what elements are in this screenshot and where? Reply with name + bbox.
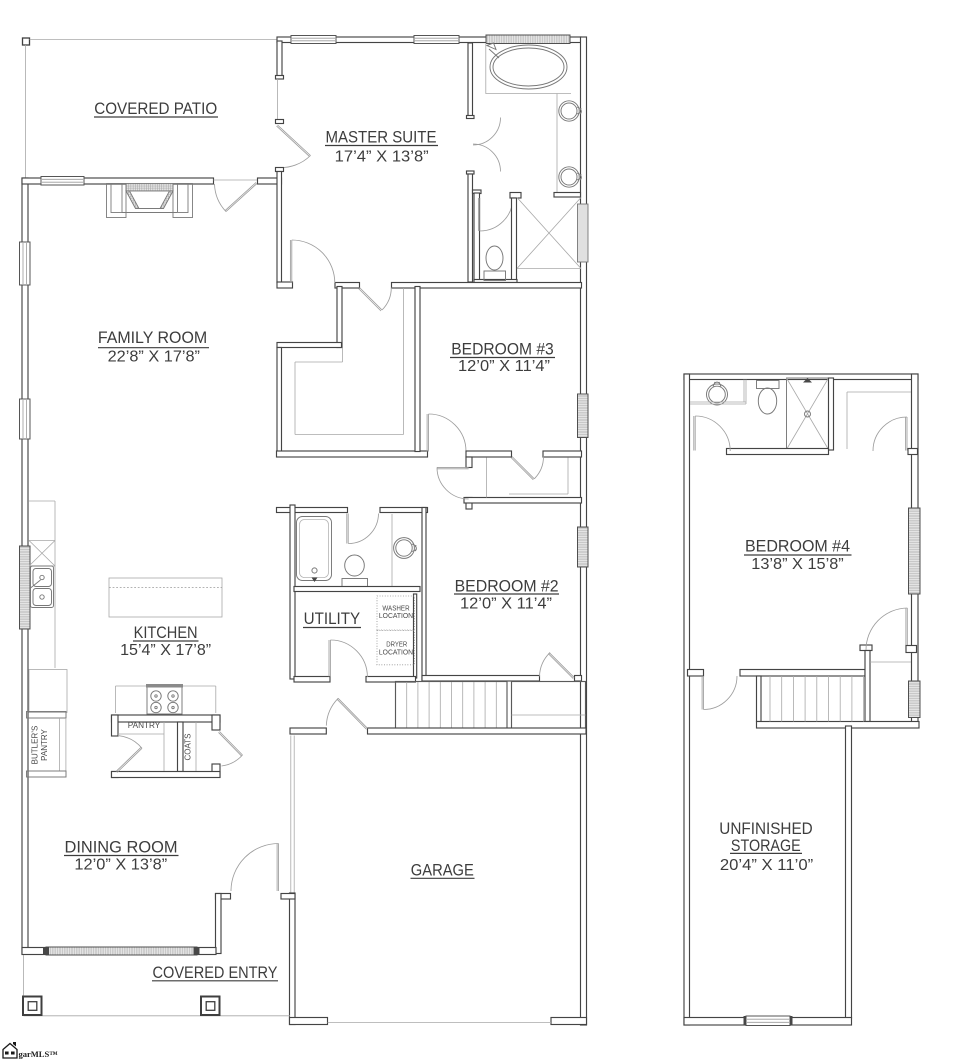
svg-text:WASHER: WASHER	[382, 606, 409, 613]
svg-text:BUTLER’S: BUTLER’S	[31, 726, 40, 765]
svg-text:COATS: COATS	[184, 734, 193, 761]
svg-text:BEDROOM #2: BEDROOM #2	[455, 577, 559, 595]
svg-text:DRYER: DRYER	[386, 641, 407, 648]
svg-text:LOCATION: LOCATION	[379, 650, 413, 657]
svg-text:BEDROOM #4: BEDROOM #4	[745, 538, 850, 556]
svg-text:BEDROOM #3: BEDROOM #3	[451, 341, 554, 359]
svg-text:12’0” X 11’4”: 12’0” X 11’4”	[458, 358, 550, 375]
svg-text:17’4” X 13’8”: 17’4” X 13’8”	[335, 148, 429, 165]
svg-text:15’4” X 17’8”: 15’4” X 17’8”	[120, 642, 211, 659]
svg-text:12’0” X 13’8”: 12’0” X 13’8”	[74, 857, 167, 874]
svg-text:UTILITY: UTILITY	[304, 610, 361, 628]
svg-text:20’4” X 11’0”: 20’4” X 11’0”	[720, 857, 813, 874]
svg-text:COVERED PATIO: COVERED PATIO	[94, 100, 217, 118]
svg-text:garMLS™: garMLS™	[19, 1049, 58, 1059]
svg-text:22’8” X 17’8”: 22’8” X 17’8”	[108, 349, 200, 366]
svg-text:UNFINISHED: UNFINISHED	[719, 820, 812, 838]
svg-text:STORAGE: STORAGE	[731, 837, 801, 855]
svg-text:DINING ROOM: DINING ROOM	[65, 839, 178, 857]
svg-text:12’0” X 11’4”: 12’0” X 11’4”	[460, 595, 552, 612]
svg-text:PANTRY: PANTRY	[128, 721, 161, 730]
svg-text:MASTER SUITE: MASTER SUITE	[326, 129, 437, 147]
svg-text:PANTRY: PANTRY	[40, 728, 49, 760]
svg-text:KITCHEN: KITCHEN	[134, 624, 198, 642]
svg-text:GARAGE: GARAGE	[411, 862, 474, 880]
svg-text:FAMILY ROOM: FAMILY ROOM	[98, 329, 207, 347]
svg-text:LOCATION: LOCATION	[379, 613, 413, 620]
svg-text:13’8” X 15’8”: 13’8” X 15’8”	[751, 556, 844, 573]
svg-text:COVERED ENTRY: COVERED ENTRY	[153, 964, 278, 982]
